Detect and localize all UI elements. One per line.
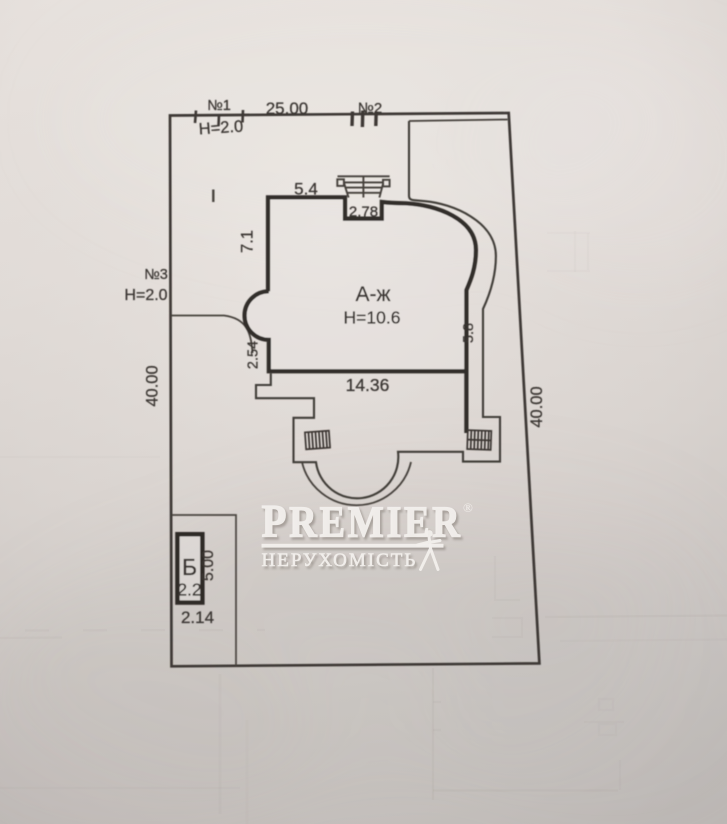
svg-text:2.14: 2.14 — [181, 608, 214, 627]
svg-text:Н=2.0: Н=2.0 — [124, 287, 167, 304]
svg-text:2.78: 2.78 — [349, 204, 378, 221]
svg-text:®: ® — [463, 500, 473, 515]
svg-text:5.8: 5.8 — [461, 323, 477, 343]
svg-text:5.4: 5.4 — [294, 180, 318, 199]
svg-text:14.36: 14.36 — [346, 375, 390, 395]
svg-text:№3: №3 — [144, 267, 168, 283]
svg-text:№2: №2 — [358, 100, 382, 117]
svg-text:НЕРУХОМІСТЬ: НЕРУХОМІСТЬ — [262, 550, 418, 571]
svg-text:Н=10.6: Н=10.6 — [344, 308, 401, 328]
svg-text:40.00: 40.00 — [144, 365, 162, 406]
svg-text:Б: Б — [182, 554, 197, 580]
svg-text:№1: №1 — [207, 98, 231, 114]
svg-text:Н=2.0: Н=2.0 — [198, 117, 244, 138]
svg-text:2.54: 2.54 — [246, 341, 262, 369]
svg-text:PREMIER: PREMIER — [262, 496, 463, 548]
svg-text:2.2: 2.2 — [177, 580, 201, 600]
svg-text:5.00: 5.00 — [200, 550, 217, 581]
svg-text:40.00: 40.00 — [528, 386, 546, 427]
svg-text:А-ж: А-ж — [355, 283, 390, 306]
svg-text:25.00: 25.00 — [266, 99, 309, 118]
svg-text:7.1: 7.1 — [239, 230, 257, 253]
